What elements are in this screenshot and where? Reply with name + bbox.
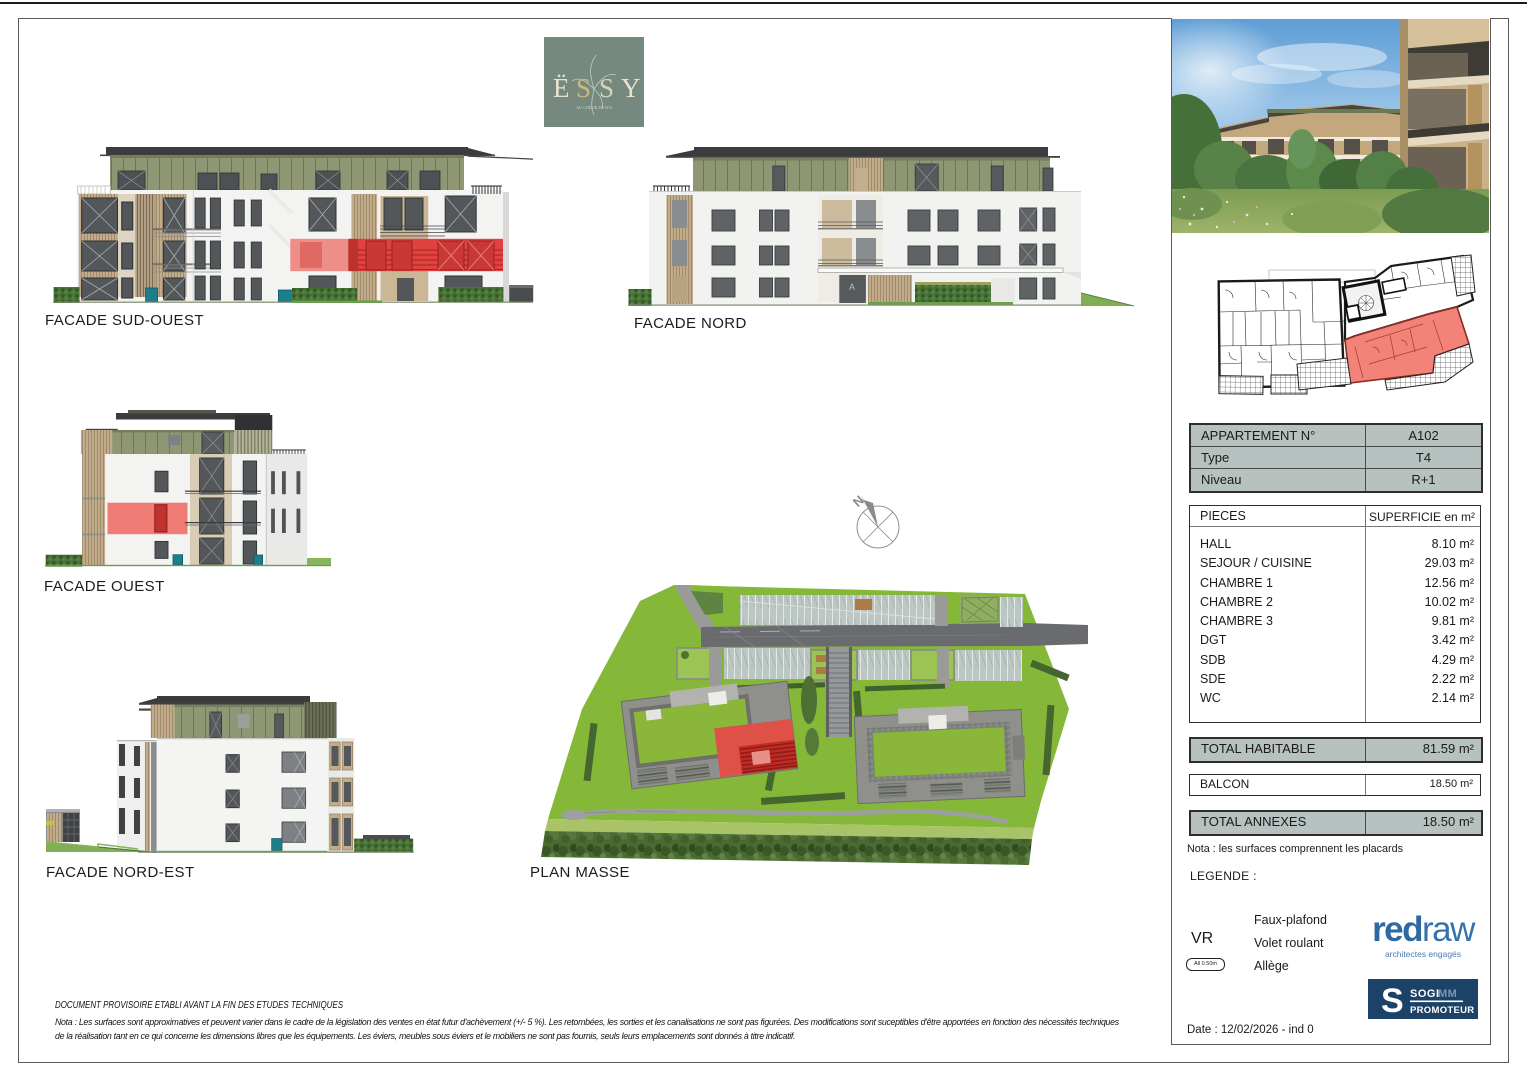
svg-text:MM: MM xyxy=(1438,988,1457,1000)
svg-text:A: A xyxy=(849,282,855,292)
svg-text:S: S xyxy=(599,73,614,103)
svg-text:AU COEUR DE SOI: AU COEUR DE SOI xyxy=(576,105,612,110)
svg-text:S: S xyxy=(1381,982,1404,1019)
svg-text:N: N xyxy=(850,495,867,510)
svg-text:SOGI: SOGI xyxy=(1410,988,1440,1000)
svg-text:Ë: Ë xyxy=(553,73,570,103)
svg-text:S: S xyxy=(576,73,591,103)
svg-text:Y: Y xyxy=(621,73,641,103)
svg-text:PROMOTEUR: PROMOTEUR xyxy=(1410,1005,1474,1016)
